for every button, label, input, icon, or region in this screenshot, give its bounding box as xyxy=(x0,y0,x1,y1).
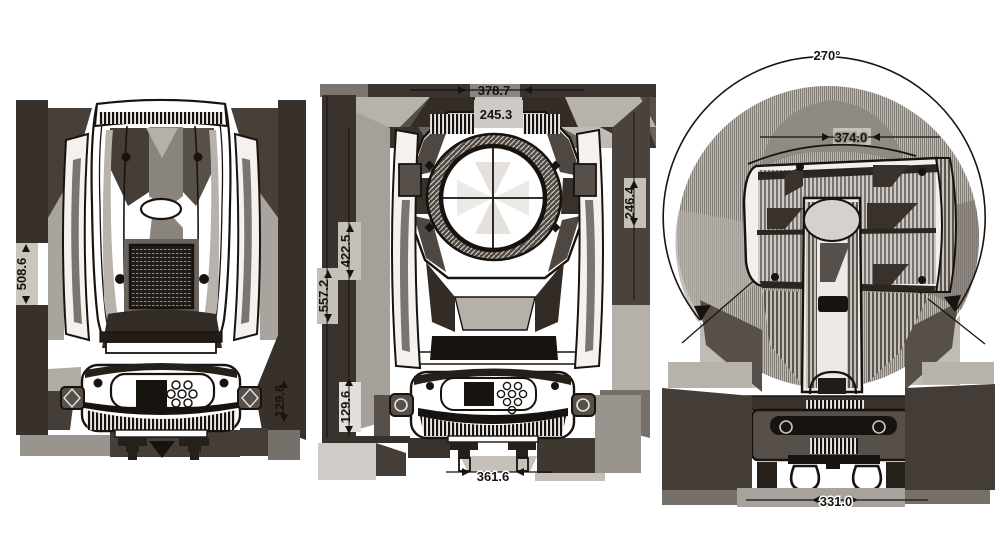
svg-text:508.6: 508.6 xyxy=(14,258,29,291)
svg-text:129.6: 129.6 xyxy=(272,385,287,418)
svg-text:245.3: 245.3 xyxy=(480,107,513,122)
svg-text:331.0: 331.0 xyxy=(820,494,853,509)
svg-text:422.5: 422.5 xyxy=(338,235,353,268)
svg-text:246.4: 246.4 xyxy=(622,186,637,219)
svg-text:129.6: 129.6 xyxy=(338,391,353,424)
svg-text:557.2: 557.2 xyxy=(316,280,331,313)
svg-text:378.7: 378.7 xyxy=(478,83,511,98)
svg-text:361.6: 361.6 xyxy=(477,469,510,484)
svg-text:270°: 270° xyxy=(814,48,841,63)
svg-text:374.0: 374.0 xyxy=(835,130,868,145)
